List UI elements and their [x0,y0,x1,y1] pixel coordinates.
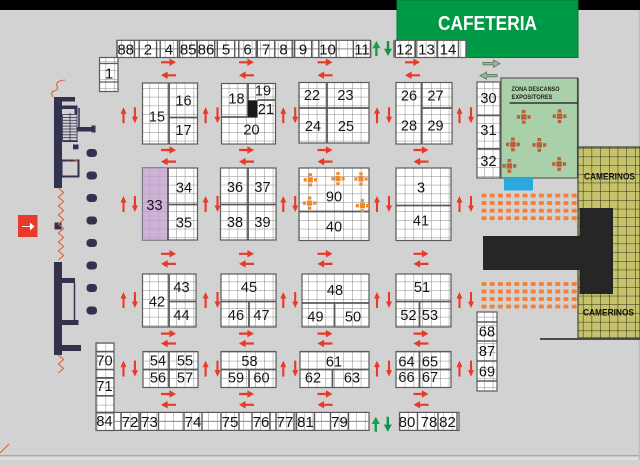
svg-text:59: 59 [228,371,244,387]
svg-text:80: 80 [399,414,416,431]
svg-text:9: 9 [299,41,307,58]
svg-text:41: 41 [413,214,429,230]
svg-text:76: 76 [253,414,270,431]
svg-text:77: 77 [277,414,294,431]
svg-text:57: 57 [177,371,193,387]
svg-text:34: 34 [176,181,192,197]
svg-text:51: 51 [414,280,430,296]
svg-text:46: 46 [228,308,244,324]
svg-text:20: 20 [243,123,259,139]
svg-text:30: 30 [480,91,496,107]
svg-text:56: 56 [150,371,166,387]
svg-text:72: 72 [122,414,139,431]
svg-text:40: 40 [326,220,342,236]
svg-text:26: 26 [401,89,417,105]
svg-text:54: 54 [150,354,166,370]
svg-text:15: 15 [149,110,165,126]
svg-text:67: 67 [422,370,438,386]
svg-text:81: 81 [297,414,314,431]
svg-text:5: 5 [222,41,230,58]
svg-text:55: 55 [177,354,193,370]
svg-text:36: 36 [227,180,243,196]
svg-text:19: 19 [255,84,271,100]
svg-text:CAMERINOS: CAMERINOS [584,172,635,183]
svg-text:47: 47 [253,308,269,324]
svg-text:14: 14 [440,41,457,58]
svg-text:50: 50 [345,310,361,326]
svg-text:64: 64 [398,355,414,371]
svg-text:61: 61 [326,355,342,371]
svg-text:7: 7 [262,41,270,58]
svg-text:31: 31 [480,123,496,139]
svg-text:49: 49 [307,310,323,326]
svg-text:EXPOSITORES: EXPOSITORES [512,94,553,101]
svg-text:69: 69 [479,365,495,381]
svg-text:86: 86 [198,41,215,58]
svg-text:38: 38 [227,215,243,231]
svg-text:75: 75 [222,414,239,431]
svg-text:ZONA DESCANSO: ZONA DESCANSO [512,86,560,93]
svg-text:25: 25 [338,119,354,135]
svg-text:12: 12 [396,41,413,58]
svg-text:28: 28 [401,119,417,135]
svg-text:90: 90 [326,190,342,206]
svg-text:85: 85 [180,41,197,58]
svg-text:87: 87 [479,344,495,360]
svg-text:71: 71 [96,379,112,395]
svg-text:70: 70 [96,354,112,370]
svg-text:66: 66 [398,370,414,386]
svg-text:68: 68 [479,325,495,341]
svg-text:35: 35 [176,216,192,232]
svg-text:22: 22 [304,88,320,104]
svg-text:23: 23 [337,88,353,104]
svg-text:37: 37 [254,180,270,196]
svg-text:27: 27 [427,89,443,105]
svg-text:11: 11 [354,41,370,58]
svg-text:39: 39 [254,215,270,231]
svg-text:45: 45 [241,280,257,296]
svg-text:3: 3 [417,181,425,197]
svg-text:44: 44 [173,308,189,324]
svg-text:24: 24 [305,119,321,135]
svg-text:82: 82 [439,414,456,431]
svg-text:16: 16 [175,94,191,110]
svg-text:48: 48 [327,283,343,299]
svg-text:CAMERINOS: CAMERINOS [583,308,634,319]
svg-text:60: 60 [253,371,269,387]
svg-text:42: 42 [149,295,165,311]
svg-text:88: 88 [117,41,134,58]
svg-text:6: 6 [243,41,251,58]
svg-text:63: 63 [344,371,360,387]
svg-text:73: 73 [141,414,158,431]
svg-text:74: 74 [185,414,202,431]
svg-text:62: 62 [305,371,321,387]
svg-text:CAFETERIA: CAFETERIA [438,12,537,35]
svg-text:1: 1 [105,65,113,82]
svg-text:33: 33 [146,198,162,214]
svg-text:10: 10 [319,41,336,58]
svg-text:2: 2 [144,41,152,58]
svg-text:18: 18 [228,92,244,108]
svg-text:84: 84 [96,414,112,430]
svg-text:32: 32 [480,154,496,170]
svg-text:52: 52 [400,308,416,324]
svg-text:65: 65 [422,355,438,371]
svg-text:43: 43 [173,280,189,296]
svg-text:29: 29 [427,119,443,135]
svg-text:8: 8 [279,41,287,58]
svg-text:78: 78 [421,414,438,431]
svg-text:58: 58 [241,354,257,370]
svg-text:21: 21 [258,102,274,118]
svg-text:53: 53 [422,308,438,324]
svg-text:4: 4 [165,41,173,58]
svg-text:17: 17 [175,123,191,139]
svg-text:79: 79 [331,414,348,431]
svg-text:13: 13 [418,41,435,58]
